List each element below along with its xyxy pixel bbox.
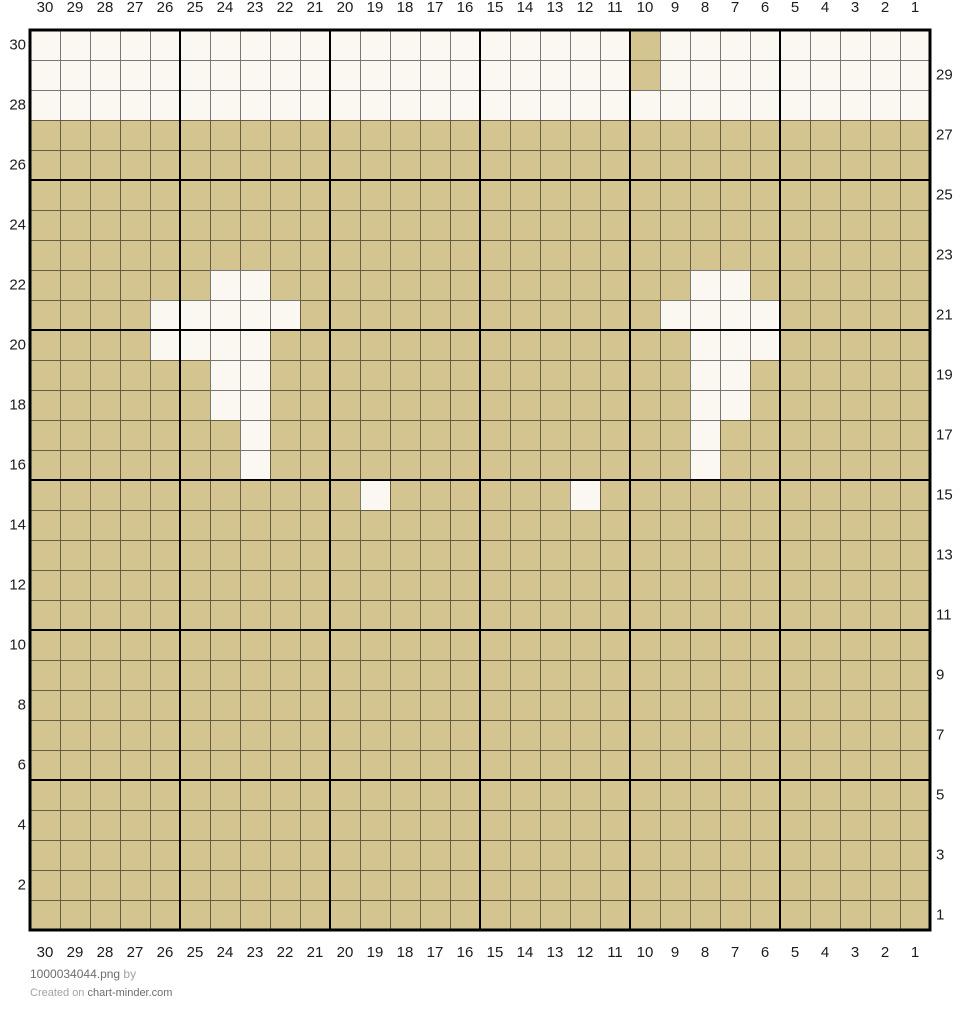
- svg-text:21: 21: [307, 0, 324, 16]
- svg-text:13: 13: [936, 547, 953, 564]
- svg-text:23: 23: [936, 247, 953, 264]
- svg-text:22: 22: [277, 0, 294, 16]
- svg-text:9: 9: [936, 667, 944, 684]
- svg-text:11: 11: [607, 944, 623, 961]
- svg-text:29: 29: [936, 67, 953, 84]
- svg-text:4: 4: [18, 817, 26, 834]
- svg-text:9: 9: [671, 944, 679, 961]
- svg-text:11: 11: [607, 0, 623, 16]
- svg-text:25: 25: [187, 0, 204, 16]
- svg-text:3: 3: [851, 944, 859, 961]
- svg-text:28: 28: [9, 97, 26, 114]
- svg-text:19: 19: [367, 944, 384, 961]
- svg-text:10: 10: [637, 944, 654, 961]
- svg-text:1: 1: [936, 907, 944, 924]
- svg-text:16: 16: [457, 944, 474, 961]
- svg-text:5: 5: [936, 787, 944, 804]
- svg-text:8: 8: [701, 0, 709, 16]
- svg-text:11: 11: [936, 607, 952, 624]
- svg-text:1: 1: [911, 0, 919, 16]
- svg-text:7: 7: [731, 0, 739, 16]
- svg-text:2: 2: [18, 877, 26, 894]
- svg-text:24: 24: [217, 0, 234, 16]
- svg-text:5: 5: [791, 0, 799, 16]
- svg-text:6: 6: [18, 757, 26, 774]
- svg-text:15: 15: [487, 944, 504, 961]
- svg-text:3: 3: [936, 847, 944, 864]
- svg-text:6: 6: [761, 944, 769, 961]
- svg-text:13: 13: [547, 944, 564, 961]
- svg-text:19: 19: [936, 367, 953, 384]
- svg-text:29: 29: [67, 0, 84, 16]
- svg-text:16: 16: [9, 457, 26, 474]
- svg-text:25: 25: [187, 944, 204, 961]
- svg-text:14: 14: [517, 944, 534, 961]
- svg-text:29: 29: [67, 944, 84, 961]
- svg-text:23: 23: [247, 0, 264, 16]
- svg-text:30: 30: [37, 944, 54, 961]
- svg-text:20: 20: [9, 337, 26, 354]
- svg-text:1: 1: [911, 944, 919, 961]
- svg-text:30: 30: [9, 37, 26, 54]
- svg-text:28: 28: [97, 944, 114, 961]
- svg-text:21: 21: [936, 307, 953, 324]
- svg-text:8: 8: [701, 944, 709, 961]
- svg-text:17: 17: [427, 0, 444, 16]
- svg-text:12: 12: [577, 0, 594, 16]
- svg-text:26: 26: [157, 944, 174, 961]
- svg-text:27: 27: [127, 944, 144, 961]
- svg-text:7: 7: [936, 727, 944, 744]
- svg-text:14: 14: [9, 517, 26, 534]
- svg-text:28: 28: [97, 0, 114, 16]
- svg-text:17: 17: [936, 427, 953, 444]
- svg-text:12: 12: [577, 944, 594, 961]
- svg-text:26: 26: [9, 157, 26, 174]
- svg-text:7: 7: [731, 944, 739, 961]
- svg-text:27: 27: [127, 0, 144, 16]
- svg-text:10: 10: [9, 637, 26, 654]
- svg-text:24: 24: [217, 944, 234, 961]
- svg-text:17: 17: [427, 944, 444, 961]
- svg-text:10: 10: [637, 0, 654, 16]
- svg-text:8: 8: [18, 697, 26, 714]
- svg-text:27: 27: [936, 127, 953, 144]
- svg-text:1000034044.png by: 1000034044.png by: [30, 967, 136, 981]
- svg-text:2: 2: [881, 0, 889, 16]
- svg-text:16: 16: [457, 0, 474, 16]
- svg-text:13: 13: [547, 0, 564, 16]
- svg-text:4: 4: [821, 0, 829, 16]
- svg-text:19: 19: [367, 0, 384, 16]
- svg-text:20: 20: [337, 0, 354, 16]
- svg-text:20: 20: [337, 944, 354, 961]
- svg-text:4: 4: [821, 944, 829, 961]
- svg-text:22: 22: [277, 944, 294, 961]
- svg-text:9: 9: [671, 0, 679, 16]
- svg-text:30: 30: [37, 0, 54, 16]
- svg-text:18: 18: [397, 0, 414, 16]
- svg-text:22: 22: [9, 277, 26, 294]
- svg-text:3: 3: [851, 0, 859, 16]
- svg-text:26: 26: [157, 0, 174, 16]
- svg-text:21: 21: [307, 944, 324, 961]
- svg-text:Created on chart-minder.com: Created on chart-minder.com: [30, 987, 172, 999]
- svg-text:23: 23: [247, 944, 264, 961]
- svg-text:5: 5: [791, 944, 799, 961]
- svg-text:18: 18: [397, 944, 414, 961]
- svg-text:2: 2: [881, 944, 889, 961]
- svg-text:14: 14: [517, 0, 534, 16]
- svg-text:25: 25: [936, 187, 953, 204]
- svg-text:24: 24: [9, 217, 26, 234]
- svg-text:15: 15: [487, 0, 504, 16]
- svg-text:15: 15: [936, 487, 953, 504]
- svg-text:12: 12: [9, 577, 26, 594]
- svg-text:18: 18: [9, 397, 26, 414]
- svg-text:6: 6: [761, 0, 769, 16]
